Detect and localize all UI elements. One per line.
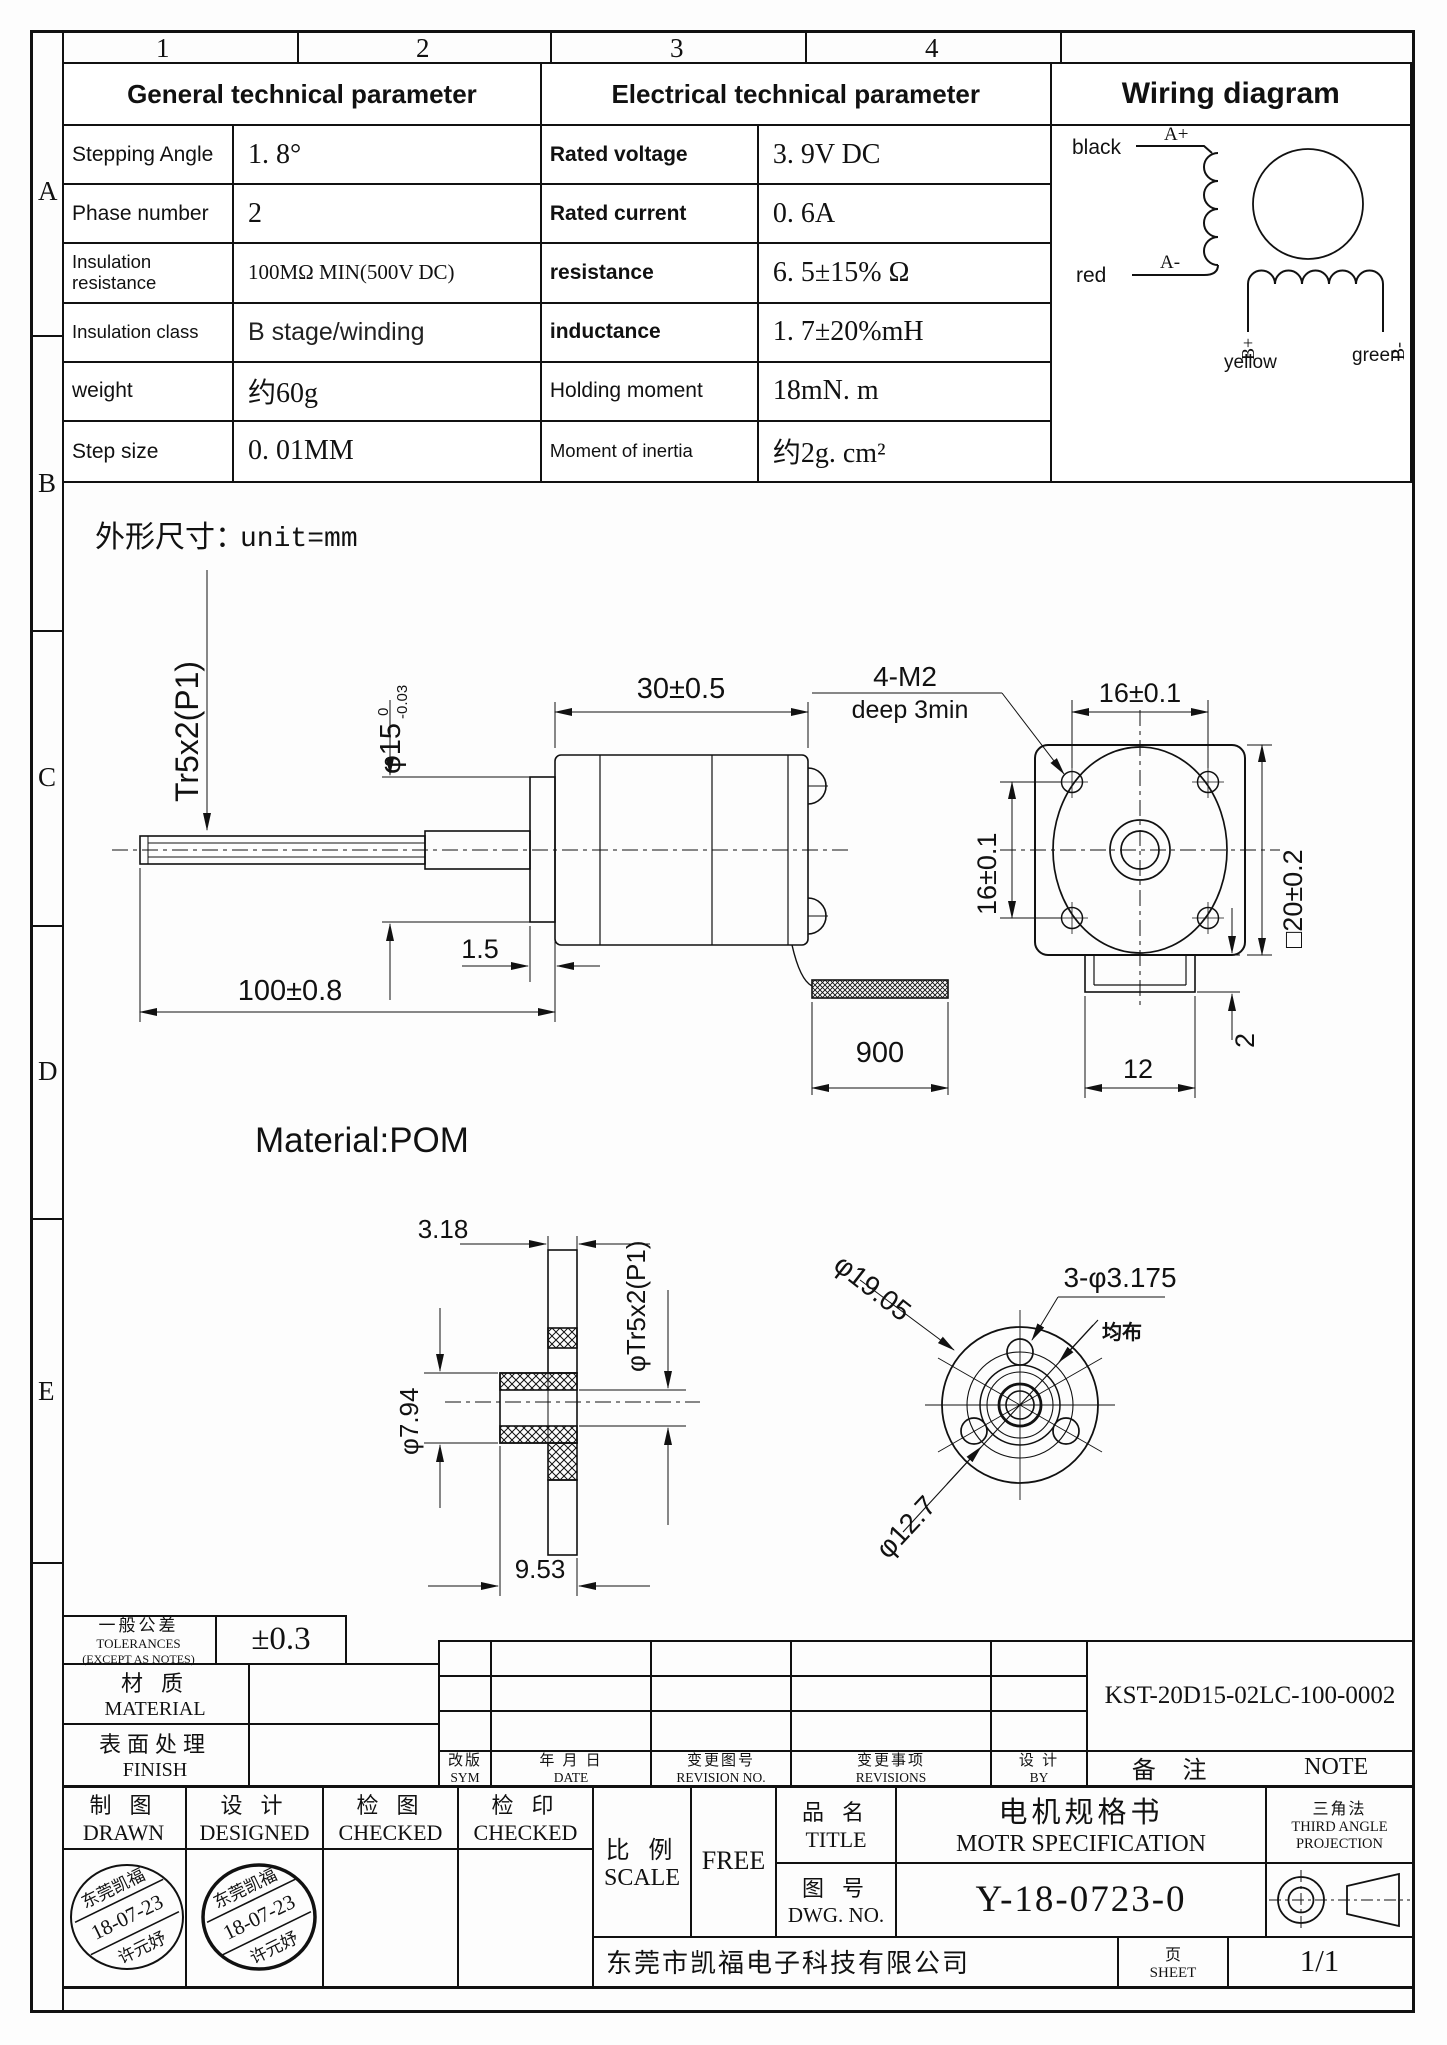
general-table: General technical parameter Stepping Ang…	[64, 64, 540, 481]
dim-screw-depth: deep 3min	[852, 696, 969, 724]
rule	[345, 1615, 347, 1663]
finish-cn: 表面处理	[99, 1727, 211, 1759]
row-label: Rated voltage	[542, 126, 759, 185]
row-value: 1. 8°	[234, 126, 540, 185]
dim-tab-width: 12	[1123, 1054, 1153, 1084]
row-label: inductance	[542, 304, 759, 363]
dwg-cn: 图 号	[802, 1871, 870, 1903]
scale-cn: 比 例	[606, 1830, 679, 1865]
sheet-value: 1/1	[1229, 1936, 1410, 1986]
zone-row-b: B	[38, 468, 56, 499]
outline-drawing: 外形尺寸： unit=mm	[62, 483, 1412, 1615]
dim-hub-width: 3.18	[418, 1214, 469, 1244]
zone-col-4: 4	[925, 33, 939, 64]
dim-screws: 4-M2	[873, 661, 937, 692]
projection-label: 三角法 THIRD ANGLE PROJECTION	[1267, 1785, 1412, 1862]
electrical-table-title: Electrical technical parameter	[542, 64, 1050, 126]
row-label: Stepping Angle	[64, 126, 234, 185]
zone-col-3: 3	[670, 33, 684, 64]
checked2-label: 检 印 CHECKED	[459, 1785, 592, 1848]
coil-a-plus-label: A+	[1164, 126, 1188, 145]
material-value	[250, 1663, 438, 1723]
checked-label: 检 图 CHECKED	[324, 1785, 457, 1848]
row-label: Insulation class	[64, 304, 234, 363]
checked2-en: CHECKED	[474, 1820, 578, 1846]
note-en: NOTE	[1304, 1754, 1368, 1781]
product-en: MOTR SPECIFICATION	[956, 1831, 1206, 1858]
wire-yellow-label: yellow	[1224, 352, 1277, 373]
dim-body-length: 30±0.5	[637, 673, 726, 705]
zone-row-d: D	[38, 1056, 58, 1087]
drawn-stamp: 东莞凯福 18-07-23 许元妤	[66, 1858, 188, 1978]
dim-bore: φ7.94	[394, 1388, 424, 1455]
designed-label: 设 计 DESIGNED	[187, 1785, 322, 1848]
wire-green-label: green	[1352, 345, 1401, 366]
zone-row-a: A	[38, 176, 58, 207]
wiring-diagram: black A+ A- red B+ B- yellow green	[1052, 126, 1408, 480]
zone-col-2: 2	[416, 33, 430, 64]
date-cn: 年 月 日	[539, 1749, 602, 1770]
revno-en: REVISION NO.	[676, 1770, 765, 1786]
row-value: 6. 5±15% Ω	[759, 244, 1050, 303]
product-title: 电机规格书 MOTR SPECIFICATION	[897, 1785, 1265, 1862]
note-cn: 备 注	[1132, 1750, 1217, 1785]
row-value: 18mN. m	[759, 363, 1050, 422]
revisions-cn: 变更事项	[857, 1749, 925, 1770]
row-value: 约60g	[234, 363, 540, 422]
scale-value: FREE	[692, 1785, 775, 1936]
dwg-no-label: 图 号 DWG. NO.	[777, 1862, 895, 1936]
material-label: 材 质 MATERIAL	[62, 1663, 248, 1723]
rule	[30, 335, 62, 337]
rule	[62, 1848, 592, 1850]
material-note: Material:POM	[255, 1121, 469, 1160]
row-label: resistance	[542, 244, 759, 303]
stamp-signer: 许元妤	[115, 1928, 169, 1967]
row-label: Phase number	[64, 185, 234, 244]
dim-gear-od: φ19.05	[828, 1248, 917, 1327]
row-label: Rated current	[542, 185, 759, 244]
by-en: BY	[1030, 1770, 1049, 1786]
revisions-header: 变更事项 REVISIONS	[792, 1750, 990, 1785]
rule	[30, 925, 62, 927]
stamp-signer: 许元妤	[247, 1928, 301, 1967]
row-label: Insulation resistance	[64, 244, 234, 303]
checked1-en: CHECKED	[339, 1820, 443, 1846]
row-label: weight	[64, 363, 234, 422]
rule	[30, 1218, 62, 1220]
drawing-sheet: 1 2 3 4 A B C D E General technical para…	[0, 0, 1447, 2045]
title-en: TITLE	[805, 1827, 866, 1853]
designed-cn: 设 计	[220, 1788, 288, 1820]
revno-cn: 变更图号	[687, 1749, 755, 1770]
rule	[550, 30, 552, 62]
designed-stamp: 东莞凯福 18-07-23 许元妤	[198, 1858, 320, 1978]
product-cn: 电机规格书	[998, 1789, 1163, 1831]
rev-sym-header: 改版 SYM	[440, 1750, 490, 1785]
rule	[62, 1986, 1412, 1989]
revisions-en: REVISIONS	[856, 1770, 927, 1786]
dim-shaft-length: 100±0.8	[238, 975, 343, 1007]
rule	[30, 1562, 62, 1564]
dim-gear-thread: φTr5x2(P1)	[621, 1241, 651, 1372]
row-label: Step size	[64, 422, 234, 481]
parameter-tables: General technical parameter Stepping Ang…	[62, 62, 1412, 483]
row-value: 0. 6A	[759, 185, 1050, 244]
tolerance-en: TOLERANCES	[96, 1636, 180, 1652]
electrical-table: Electrical technical parameter Rated vol…	[540, 64, 1050, 481]
zone-row-e: E	[38, 1376, 55, 1407]
coil-a-minus-label: A-	[1160, 252, 1180, 273]
rule	[1060, 30, 1062, 62]
zone-row-c: C	[38, 762, 56, 793]
tolerance-value: ±0.3	[217, 1615, 345, 1663]
material-cn: 材 质	[121, 1666, 189, 1698]
checked2-cn: 检 印	[491, 1788, 559, 1820]
projection-en2: PROJECTION	[1296, 1836, 1383, 1853]
rule	[805, 30, 807, 62]
dim-holes: 3-φ3.175	[1063, 1262, 1176, 1293]
third-angle-symbol	[1267, 1864, 1412, 1936]
material-en: MATERIAL	[104, 1698, 205, 1721]
outline-heading: 外形尺寸：	[95, 521, 245, 554]
dim-distribution-note: 均布	[1102, 1320, 1142, 1344]
rev-date-header: 年 月 日 DATE	[492, 1750, 650, 1785]
dim-cable-length: 900	[856, 1037, 904, 1069]
sheet-cn: 页	[1165, 1941, 1181, 1965]
dim-flange-height: 16±0.1	[972, 833, 1002, 915]
title-label: 品 名 TITLE	[777, 1785, 895, 1862]
row-label: Moment of inertia	[542, 422, 759, 481]
dim-tab-height: 2	[1230, 1033, 1260, 1048]
note-header: 备 注 NOTE	[1088, 1750, 1412, 1785]
zone-col-1: 1	[156, 33, 170, 64]
rev-no-header: 变更图号 REVISION NO.	[652, 1750, 790, 1785]
tolerance-label: 一般公差 TOLERANCES (EXCEPT AS NOTES)	[62, 1615, 215, 1663]
finish-value	[250, 1723, 438, 1785]
row-value: 0. 01MM	[234, 422, 540, 481]
designed-en: DESIGNED	[200, 1820, 310, 1846]
dim-hub-length: 9.53	[515, 1554, 566, 1584]
scale-label: 比 例 SCALE	[594, 1785, 690, 1936]
dim-bolt-circle: φ12.7	[870, 1490, 942, 1564]
rule	[438, 1710, 1086, 1712]
drawn-label: 制 图 DRAWN	[62, 1785, 185, 1848]
projection-en1: THIRD ANGLE	[1291, 1819, 1387, 1836]
dim-thread: Tr5x2(P1)	[169, 661, 205, 802]
dwg-en: DWG. NO.	[788, 1903, 884, 1928]
unit-note: unit=mm	[240, 524, 358, 555]
finish-label: 表面处理 FINISH	[62, 1723, 248, 1785]
row-label: Holding moment	[542, 363, 759, 422]
row-value: 约2g. cm²	[759, 422, 1050, 481]
rev-by-header: 设 计 BY	[992, 1750, 1086, 1785]
dim-square: □20±0.2	[1278, 849, 1308, 948]
wire-black-label: black	[1072, 136, 1122, 159]
sheet-label: 页 SHEET	[1119, 1936, 1227, 1986]
rule	[30, 630, 62, 632]
projection-cn: 三角法	[1312, 1795, 1366, 1819]
sym-en: SYM	[450, 1770, 479, 1786]
svg-text:0: 0	[375, 708, 392, 716]
dim-shaft-dia: φ15 0 -0.03	[375, 685, 411, 774]
row-value: 1. 7±20%mH	[759, 304, 1050, 363]
checked1-cn: 检 图	[356, 1788, 424, 1820]
drawn-cn: 制 图	[89, 1788, 157, 1820]
scale-en: SCALE	[604, 1865, 680, 1892]
general-table-title: General technical parameter	[64, 64, 540, 126]
dwg-no-value: Y-18-0723-0	[897, 1862, 1265, 1936]
sym-cn: 改版	[448, 1749, 482, 1770]
part-number: KST-20D15-02LC-100-0002	[1088, 1642, 1412, 1750]
date-en: DATE	[554, 1770, 589, 1786]
wiring-title: Wiring diagram	[1052, 64, 1410, 126]
rule	[438, 1675, 1086, 1677]
wiring-panel: Wiring diagram black A+ A- red B+ B- yel…	[1050, 64, 1410, 481]
dim-flange-width: 16±0.1	[1099, 678, 1181, 708]
rule	[297, 30, 299, 62]
drawn-en: DRAWN	[83, 1820, 164, 1846]
title-cn: 品 名	[802, 1795, 870, 1827]
sheet-en: SHEET	[1150, 1965, 1197, 1982]
finish-en: FINISH	[123, 1759, 187, 1782]
company-name: 东莞市凯福电子科技有限公司	[592, 1936, 1117, 1986]
svg-text:φ15: φ15	[375, 723, 407, 774]
by-cn: 设 计	[1019, 1749, 1059, 1770]
dim-collar: 1.5	[461, 934, 499, 964]
row-value: 100MΩ MIN(500V DC)	[234, 244, 540, 303]
wire-red-label: red	[1076, 264, 1106, 287]
row-value: B stage/winding	[234, 304, 540, 363]
row-value: 2	[234, 185, 540, 244]
row-value: 3. 9V DC	[759, 126, 1050, 185]
svg-text:-0.03: -0.03	[394, 685, 411, 719]
tolerance-cn: 一般公差	[99, 1611, 179, 1636]
